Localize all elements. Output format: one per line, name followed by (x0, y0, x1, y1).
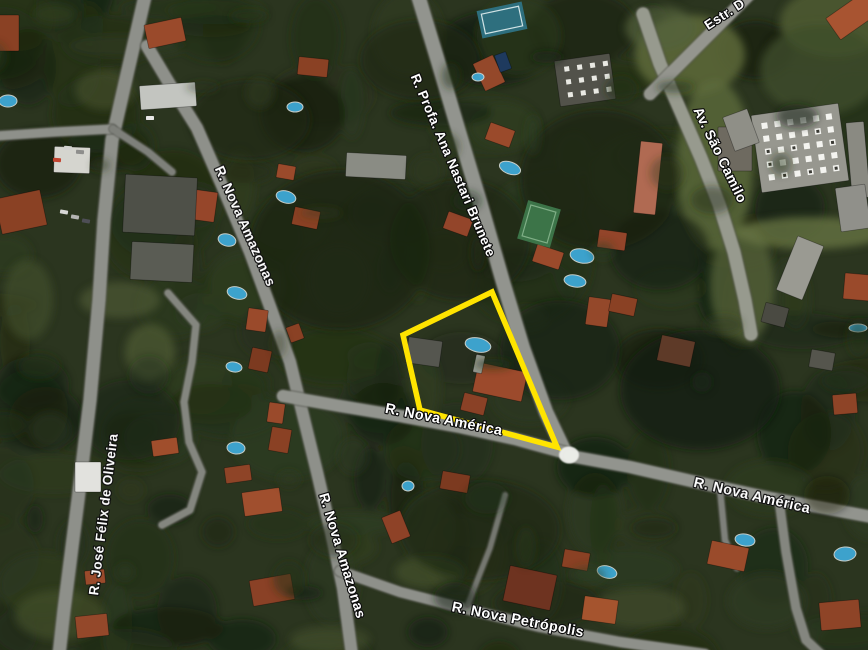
swimming-pool (402, 481, 414, 491)
swimming-pool (0, 95, 17, 107)
tree-blob (592, 242, 614, 260)
tree-blob (526, 115, 540, 155)
rooftop-unit (580, 90, 586, 96)
tree-blob (118, 479, 144, 501)
tree-blob (531, 51, 563, 63)
tree-blob (570, 566, 606, 584)
rooftop-unit (566, 79, 572, 85)
building-roof (0, 15, 19, 51)
satellite-map-canvas: R. Profa. Ana Nastari BruneteAv. São Cam… (0, 0, 868, 650)
building-roof (835, 184, 868, 232)
building-roof (832, 393, 858, 415)
tree-blob (474, 359, 512, 369)
rooftop-unit (826, 113, 833, 120)
satellite-map[interactable]: R. Profa. Ana Nastari BruneteAv. São Cam… (0, 0, 868, 650)
building-roof (130, 241, 194, 282)
rooftop-unit (820, 167, 827, 174)
tree-blob (300, 207, 342, 219)
tree-blob (30, 412, 70, 448)
tree-blob (465, 482, 509, 514)
swimming-pool (472, 73, 484, 81)
rooftop-unit-dark (792, 146, 795, 149)
tree-blob (704, 316, 742, 334)
rooftop-unit (802, 130, 809, 137)
tree-blob (157, 576, 217, 646)
rooftop-unit-dark (831, 141, 834, 144)
rooftop-unit (831, 152, 838, 159)
rooftop-unit (590, 62, 596, 68)
intersection-marker (559, 447, 579, 464)
rooftop-unit (816, 141, 823, 148)
tree-blob (129, 356, 169, 394)
vehicle (76, 150, 84, 155)
building-roof (809, 349, 836, 371)
building-roof (151, 437, 179, 456)
tree-blob (18, 353, 60, 379)
rooftop-unit (603, 61, 609, 67)
rooftop-unit-dark (809, 170, 812, 173)
tree-blob (34, 4, 76, 24)
tree-blob (273, 561, 305, 597)
building-roof (297, 56, 329, 77)
rooftop-unit (604, 74, 610, 80)
tree-blob (442, 63, 460, 89)
tree-blob (516, 527, 536, 567)
rooftop-unit (778, 146, 785, 153)
tree-blob (202, 517, 234, 547)
terrain-patch (3, 260, 53, 340)
tree-blob (632, 518, 676, 538)
building-roof (123, 174, 198, 236)
building-roof (75, 462, 101, 492)
tree-blob (338, 438, 368, 474)
building-roof (276, 164, 296, 181)
tree-blob (847, 319, 868, 357)
vehicle (146, 116, 154, 120)
rooftop-unit (792, 157, 799, 164)
building-roof (242, 487, 283, 516)
rooftop-unit (763, 135, 770, 142)
tree-blob (411, 155, 443, 187)
building-roof (248, 347, 272, 373)
building-roof (581, 596, 618, 624)
building-roof (224, 464, 252, 483)
building-roof (268, 426, 292, 453)
rooftop-unit-dark (816, 130, 819, 133)
tree-blob (692, 372, 712, 392)
building-roof (345, 152, 406, 179)
building-roof (843, 273, 868, 301)
rooftop-unit (564, 66, 570, 72)
rooftop-unit (593, 88, 599, 94)
tree-blob (650, 156, 684, 190)
rooftop-unit (776, 133, 783, 140)
rooftop-unit (794, 170, 801, 177)
rooftop-unit (827, 126, 834, 133)
vehicle (64, 146, 72, 151)
tree-blob (230, 9, 268, 23)
tree-blob (116, 563, 134, 581)
rooftop-unit-dark (766, 150, 769, 153)
rooftop-unit (577, 64, 583, 70)
rooftop-unit (803, 143, 810, 150)
building-roof (246, 308, 269, 333)
tree-blob (408, 617, 448, 647)
tree-blob (804, 476, 850, 514)
rooftop-unit (768, 174, 775, 181)
swimming-pool (287, 102, 303, 112)
tree-blob (771, 153, 791, 175)
building-roof (75, 613, 109, 638)
building-roof (267, 402, 286, 424)
rooftop-unit (592, 75, 598, 81)
tree-blob (186, 81, 220, 93)
rooftop-unit (761, 122, 768, 129)
rooftop-unit (568, 92, 574, 98)
tree-blob (27, 505, 43, 533)
tree-blob (656, 81, 694, 93)
rooftop-unit-dark (834, 166, 837, 169)
tree-blob (605, 76, 637, 102)
tree-blob (278, 471, 300, 487)
tree-blob (272, 331, 286, 357)
rooftop-unit (789, 132, 796, 139)
rooftop-unit (818, 154, 825, 161)
rooftop-unit (805, 156, 812, 163)
tree-blob (776, 104, 818, 128)
tree-blob (246, 78, 274, 108)
building-roof (819, 599, 861, 630)
building-roof (585, 297, 611, 328)
vehicle (53, 158, 61, 163)
tree-blob (691, 186, 733, 214)
tree-blob (92, 159, 110, 171)
rooftop-unit (579, 77, 585, 83)
